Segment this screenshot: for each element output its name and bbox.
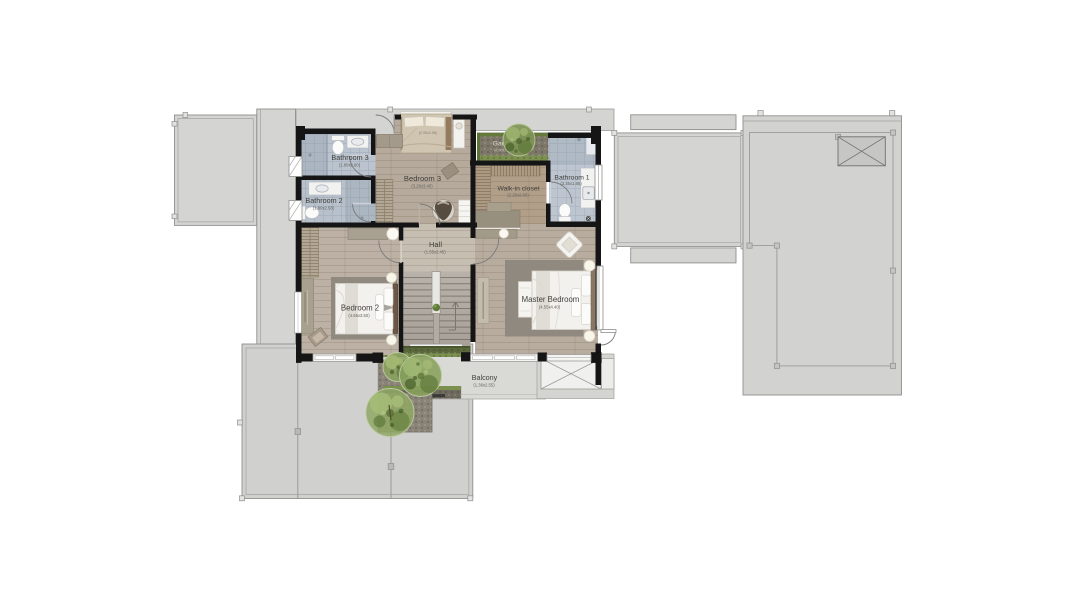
svg-text:(1.80x2.58): (1.80x2.58): [313, 206, 335, 211]
svg-text:(1.36x2.55): (1.36x2.55): [473, 383, 495, 388]
svg-text:(4.65x3.50): (4.65x3.50): [348, 313, 370, 318]
svg-text:Master Bedroom: Master Bedroom: [522, 295, 580, 304]
svg-text:Walk-in closet: Walk-in closet: [497, 186, 539, 193]
svg-text:(1.55x2.45): (1.55x2.45): [424, 250, 446, 255]
svg-text:(3.26x3.40): (3.26x3.40): [411, 184, 433, 189]
svg-text:Balcony: Balcony: [472, 373, 498, 382]
svg-text:Bedroom 3: Bedroom 3: [404, 174, 441, 183]
svg-text:(4.55x4.40): (4.55x4.40): [539, 305, 561, 310]
svg-text:(0.55x2.58): (0.55x2.58): [419, 131, 437, 135]
svg-text:Bathroom 3: Bathroom 3: [331, 153, 368, 162]
svg-text:(3.35x1.85): (3.35x1.85): [560, 181, 582, 186]
svg-text:(2.25x2.60): (2.25x2.60): [507, 193, 529, 198]
svg-text:Bedroom 2: Bedroom 2: [341, 304, 379, 313]
svg-text:(1.80x2.80): (1.80x2.80): [339, 163, 361, 168]
svg-text:Hall: Hall: [429, 240, 442, 249]
svg-text:Bathroom 2: Bathroom 2: [305, 196, 342, 205]
